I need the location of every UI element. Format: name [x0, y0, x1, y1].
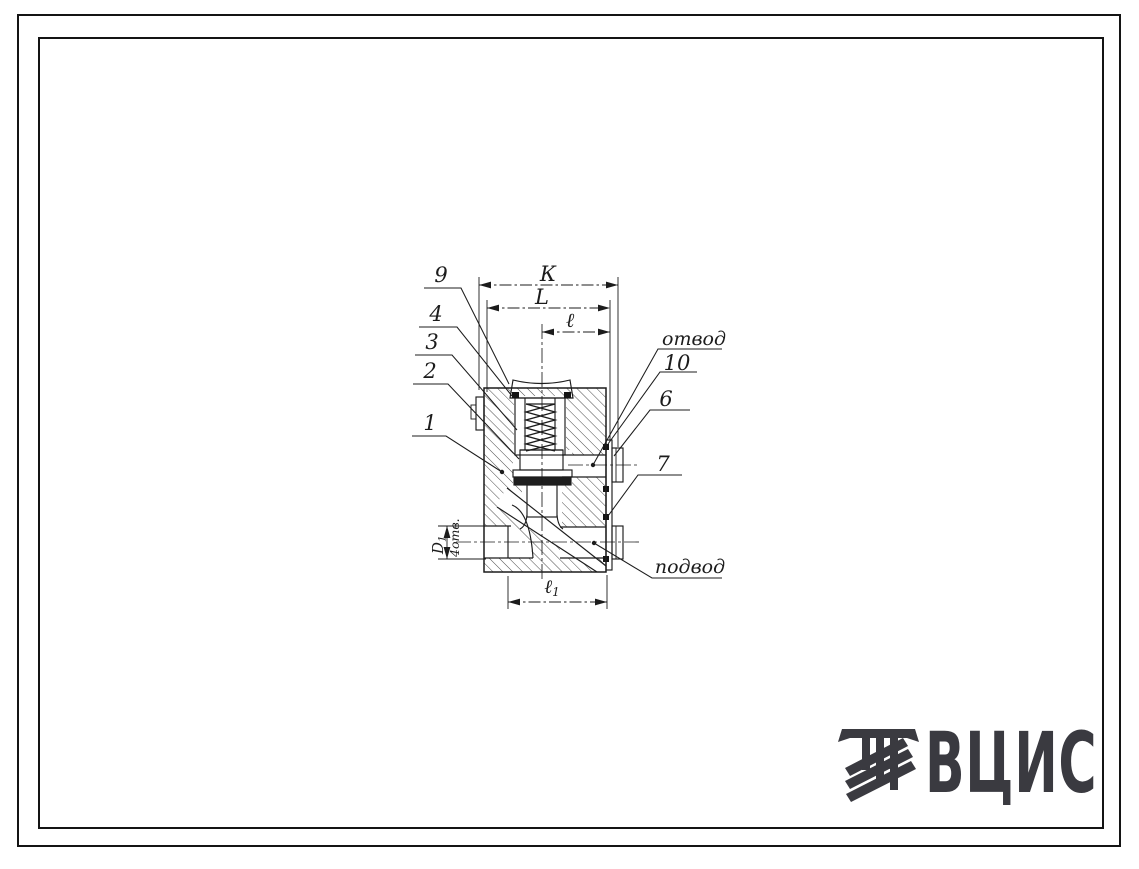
- left-cover-plate: [476, 397, 484, 430]
- callout-9-label: 9: [434, 263, 447, 287]
- vcis-logo-text: ВЦИС: [925, 715, 1097, 812]
- valve-body-section: [471, 380, 623, 572]
- dimension-arrow: [542, 329, 554, 336]
- dimension-arrow: [508, 599, 520, 606]
- dim-d1-label: D1: [429, 535, 449, 555]
- callout-6-label: 6: [659, 387, 672, 411]
- dimension-l1: ℓ1: [508, 575, 607, 609]
- callout-7-label: 7: [656, 452, 670, 476]
- leader-dot: [591, 463, 595, 467]
- callout-4-label: 4: [428, 302, 442, 326]
- valve-technical-drawing: К L ℓ: [0, 0, 1139, 869]
- cap-seal-left: [512, 392, 519, 398]
- scanned-drawing-page: К L ℓ: [0, 0, 1139, 869]
- vcis-logo: ВЦИС: [838, 715, 1097, 812]
- dim-l-label: ℓ: [566, 308, 575, 332]
- callout-2-label: 2: [422, 359, 436, 383]
- left-cover-bolt: [471, 405, 476, 419]
- leader-dot: [500, 470, 504, 474]
- callout-1-label: 1: [423, 411, 436, 435]
- callout-7: 7: [608, 452, 682, 516]
- dimension-l: ℓ: [542, 308, 610, 335]
- callout-3-label: 3: [425, 330, 438, 354]
- callout-10: 10: [608, 351, 697, 444]
- dimension-d1: D1 4отв.: [429, 518, 486, 559]
- inlet-port-label: подвод: [655, 556, 725, 578]
- dimension-arrow: [487, 305, 499, 312]
- callout-10-label: 10: [664, 351, 691, 375]
- leader-dot: [592, 541, 596, 545]
- callout-7-leader: [608, 475, 682, 516]
- dimension-arrow: [598, 305, 610, 312]
- dim-L-label: L: [534, 285, 549, 309]
- vcis-logo-wordmark: ВЦИС: [925, 715, 1097, 812]
- callout-6: 6: [614, 387, 690, 456]
- spring-chamber-cavity: [514, 396, 566, 455]
- dimension-arrow: [606, 282, 618, 289]
- dim-k-label: К: [539, 262, 557, 286]
- inlet-flange: [612, 526, 623, 559]
- callout-6-leader: [614, 410, 690, 456]
- outlet-passage-cavity: [562, 455, 606, 477]
- dim-l1-label: ℓ1: [544, 576, 560, 599]
- dimension-arrow: [598, 329, 610, 336]
- cap-seal-right: [564, 392, 571, 398]
- seat-seal-band: [514, 477, 571, 485]
- dimension-arrow: [595, 599, 607, 606]
- callout-10-leader: [608, 372, 697, 444]
- vcis-logo-emblem-icon: [838, 729, 919, 802]
- dimension-arrow: [479, 282, 491, 289]
- dim-holes-label: 4отв.: [447, 518, 462, 558]
- outlet-port-label: отвод: [662, 328, 726, 350]
